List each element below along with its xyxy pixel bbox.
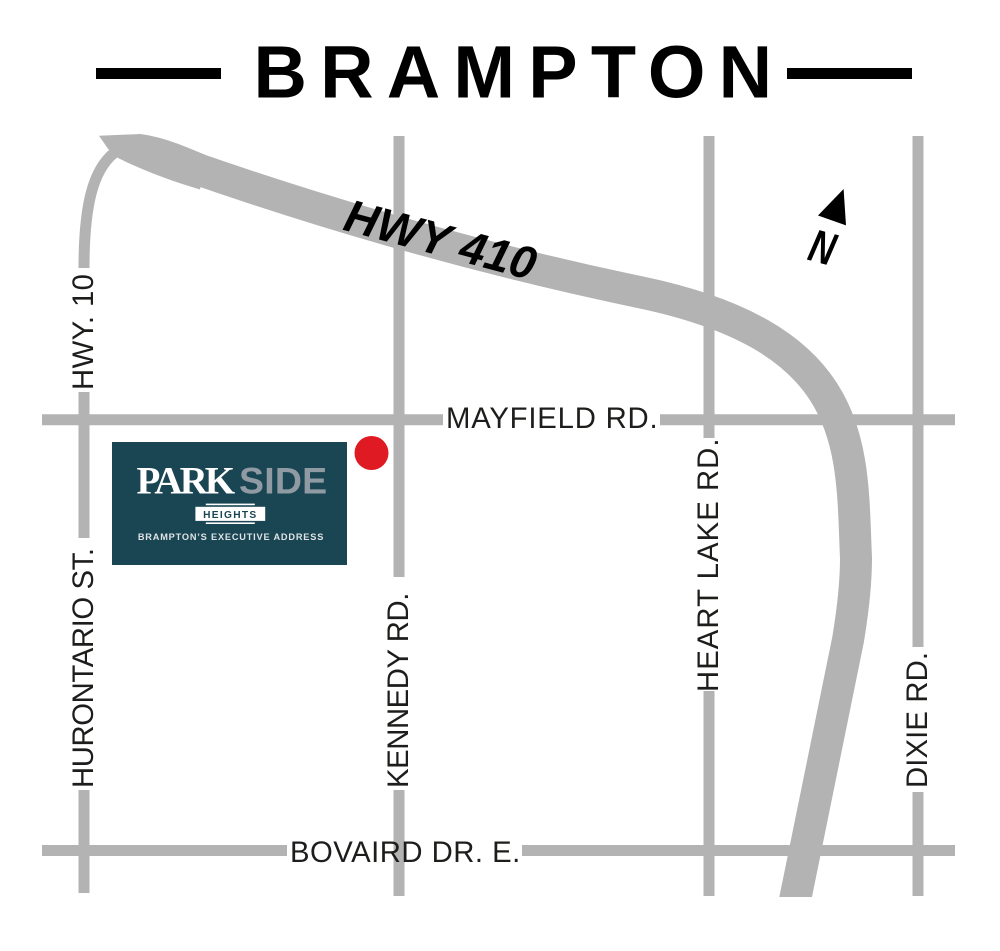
svg-text:HEART LAKE RD.: HEART LAKE RD. [692, 437, 725, 692]
svg-text:KENNEDY RD.: KENNEDY RD. [382, 593, 415, 788]
svg-text:HWY. 10: HWY. 10 [67, 274, 100, 390]
svg-text:BRAMPTON: BRAMPTON [254, 31, 786, 114]
svg-text:HEIGHTS: HEIGHTS [203, 510, 257, 521]
svg-text:SIDE: SIDE [239, 460, 327, 502]
svg-text:DIXIE RD.: DIXIE RD. [901, 652, 934, 788]
svg-text:BOVAIRD DR. E.: BOVAIRD DR. E. [290, 836, 521, 869]
svg-text:BRAMPTON’S EXECUTIVE ADDRESS: BRAMPTON’S EXECUTIVE ADDRESS [138, 532, 324, 542]
svg-text:PARK: PARK [137, 460, 236, 503]
svg-text:MAYFIELD RD.: MAYFIELD RD. [446, 402, 658, 435]
svg-text:HURONTARIO ST.: HURONTARIO ST. [67, 548, 100, 788]
